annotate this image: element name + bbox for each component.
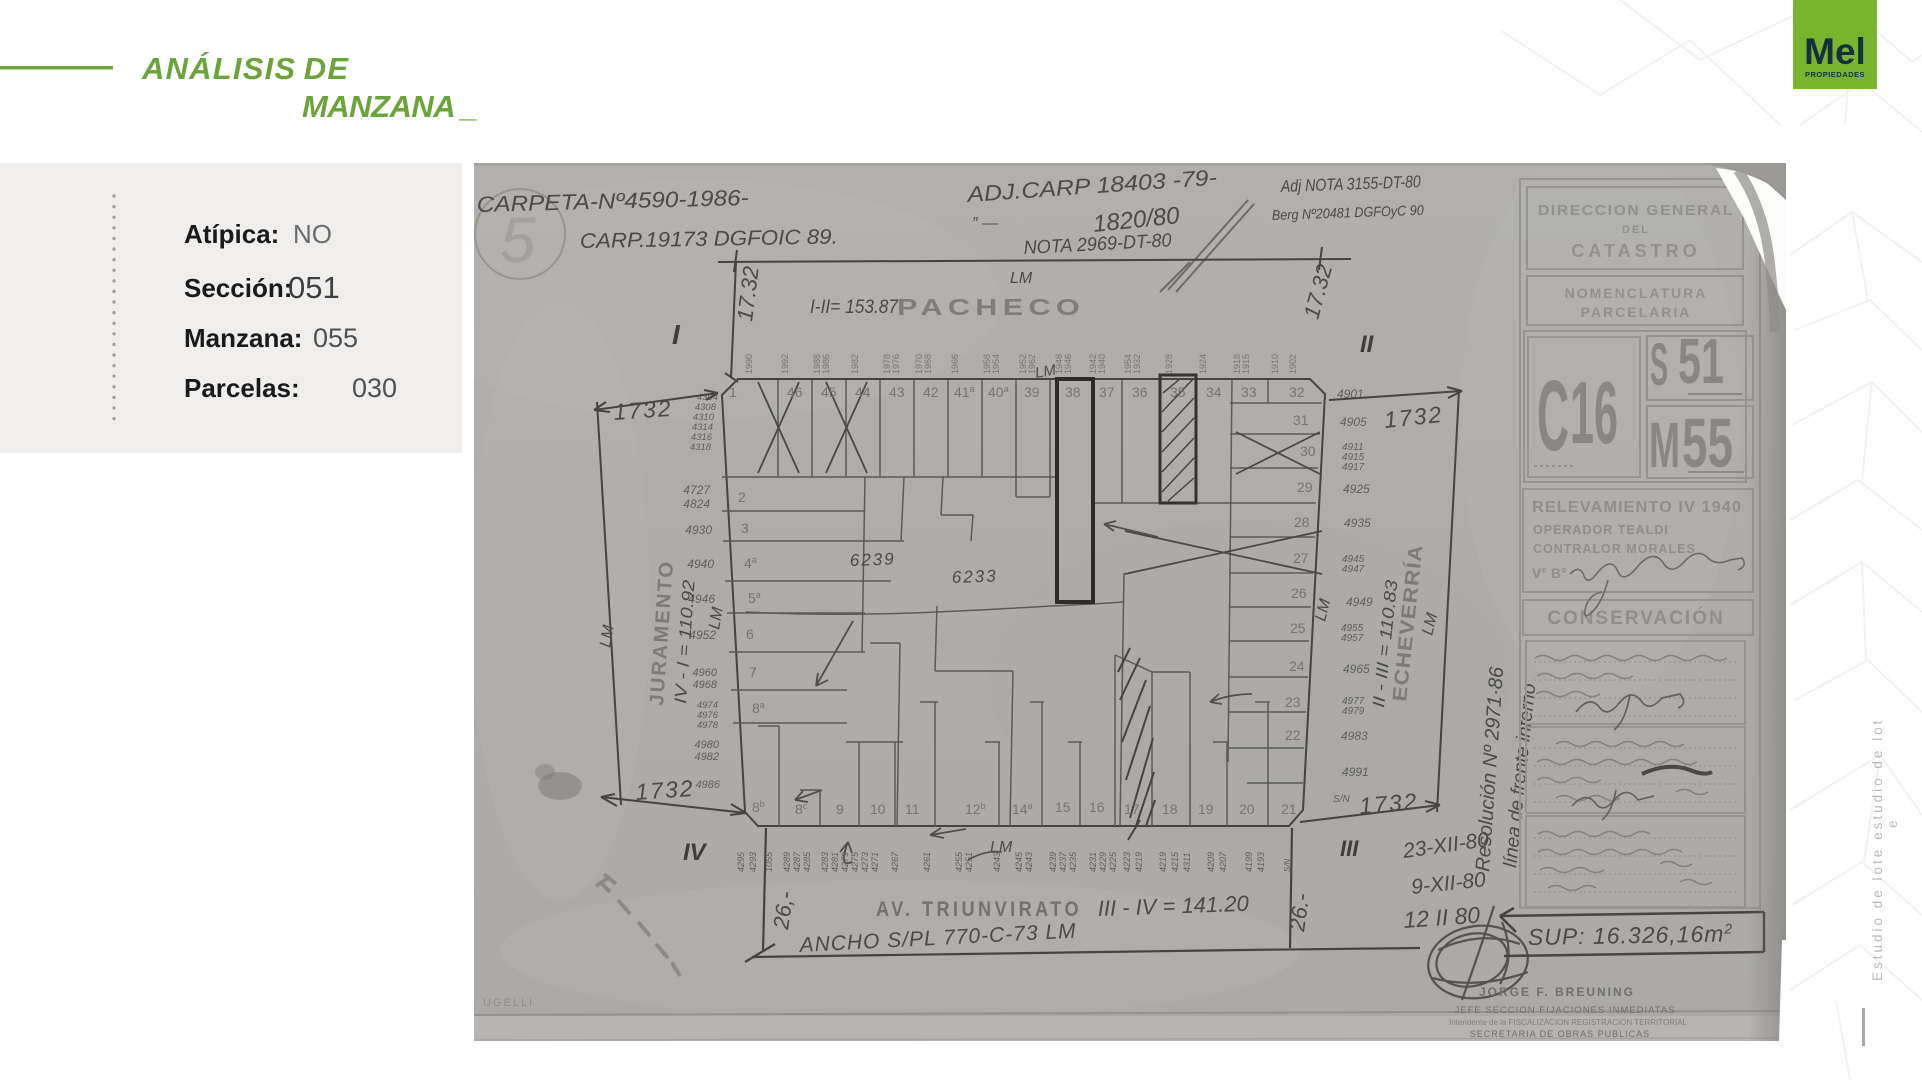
svg-text:Manzana:: Manzana: <box>184 323 302 353</box>
svg-text:030: 030 <box>352 373 397 403</box>
svg-text:Estudio de lote estudio de lo: Estudio de lote estudio de lot <box>1870 718 1885 981</box>
svg-text:ANÁLISIS DE: ANÁLISIS DE <box>141 51 349 86</box>
svg-text:055: 055 <box>313 323 358 353</box>
svg-text:Parcelas:: Parcelas: <box>184 373 300 403</box>
svg-text:Atípica:: Atípica: <box>184 219 279 249</box>
svg-text:051: 051 <box>288 270 340 305</box>
svg-text:Sección:: Sección: <box>184 273 292 303</box>
svg-text:Mel: Mel <box>1804 31 1866 72</box>
svg-text:e: e <box>1885 820 1900 828</box>
svg-text:MANZANA _: MANZANA _ <box>302 89 478 124</box>
svg-text:PROPIEDADES: PROPIEDADES <box>1805 70 1865 79</box>
svg-text:NO: NO <box>293 219 332 249</box>
